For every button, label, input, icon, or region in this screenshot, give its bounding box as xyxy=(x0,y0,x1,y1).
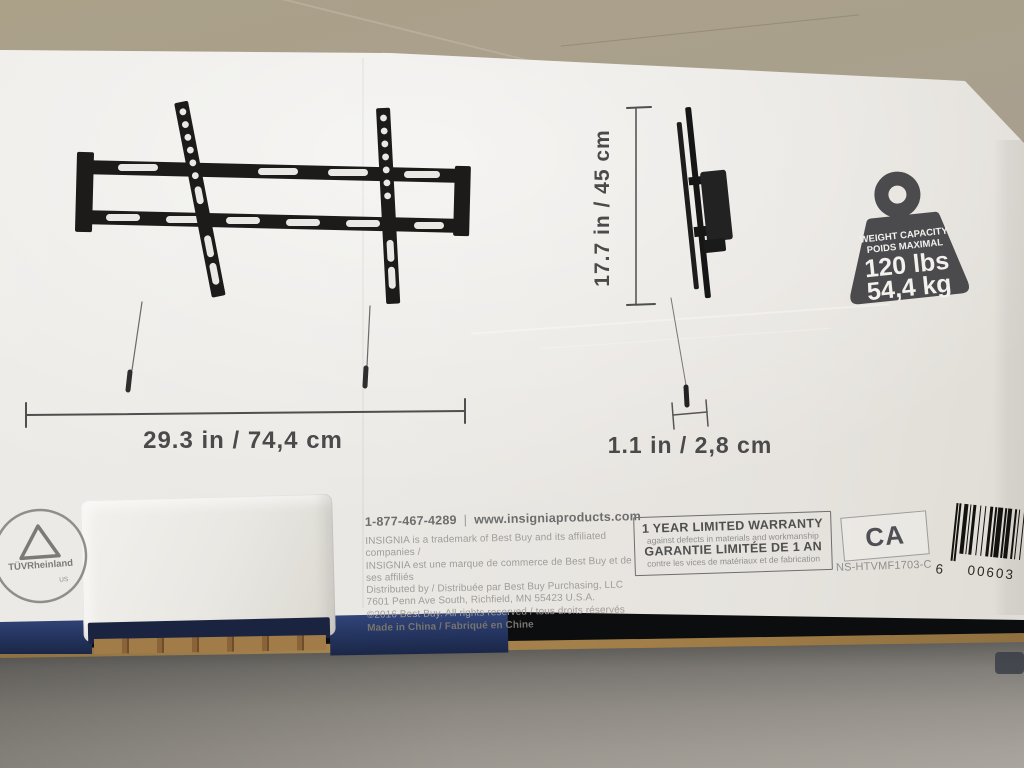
table-dark-mark xyxy=(995,652,1024,674)
ca-label: CA xyxy=(864,519,906,553)
barcode-bars xyxy=(950,503,1024,570)
ca-certification-mark: CA xyxy=(840,510,930,561)
width-dimension-label: 29.3 in / 74,4 cm xyxy=(143,427,343,454)
height-dimension xyxy=(627,107,655,305)
weight-ring-icon xyxy=(880,177,915,212)
tuv-rheinland-logo: TÜVRheinland US xyxy=(0,500,96,611)
end-cap-right xyxy=(453,166,471,236)
barcode-lead-digit: 6 xyxy=(935,561,944,577)
depth-dimension-label: 1.1 in / 2,8 cm xyxy=(608,432,773,458)
width-dimension xyxy=(26,302,465,427)
website-url: www.insigniaproducts.com xyxy=(474,509,641,526)
depth-dimension xyxy=(671,298,708,429)
mount-side-profile xyxy=(675,104,739,300)
tv-bracket-right xyxy=(376,108,400,304)
mount-rails xyxy=(75,152,471,236)
tv-bracket-left xyxy=(174,101,226,298)
height-dimension-label: 17.7 in / 45 cm xyxy=(591,129,614,286)
tuv-triangle-icon xyxy=(19,525,59,559)
legal-text-block: 1-877-467-4289|www.insigniaproducts.com … xyxy=(365,509,647,635)
box-cast-shadow xyxy=(0,640,1024,768)
phone-number: 1-877-467-4289 xyxy=(365,513,457,529)
divider: | xyxy=(464,513,468,527)
upc-barcode: 6 00603 xyxy=(933,498,1024,599)
wall-mount-side-view-diagram: 17.7 in / 45 cm 1.1 in / 2,8 cm xyxy=(585,93,785,473)
warranty-box: 1 YEAR LIMITED WARRANTY against defects … xyxy=(633,511,833,576)
weight-capacity-badge: WEIGHT CAPACITY POIDS MAXIMAL 120 lbs 54… xyxy=(831,161,980,314)
wall-mount-front-view-diagram: 29.3 in / 74,4 cm xyxy=(18,88,488,478)
tuv-logo-text: TÜVRheinland xyxy=(8,558,74,574)
tuv-logo-sub: US xyxy=(59,576,69,584)
end-cap-left xyxy=(75,152,94,232)
